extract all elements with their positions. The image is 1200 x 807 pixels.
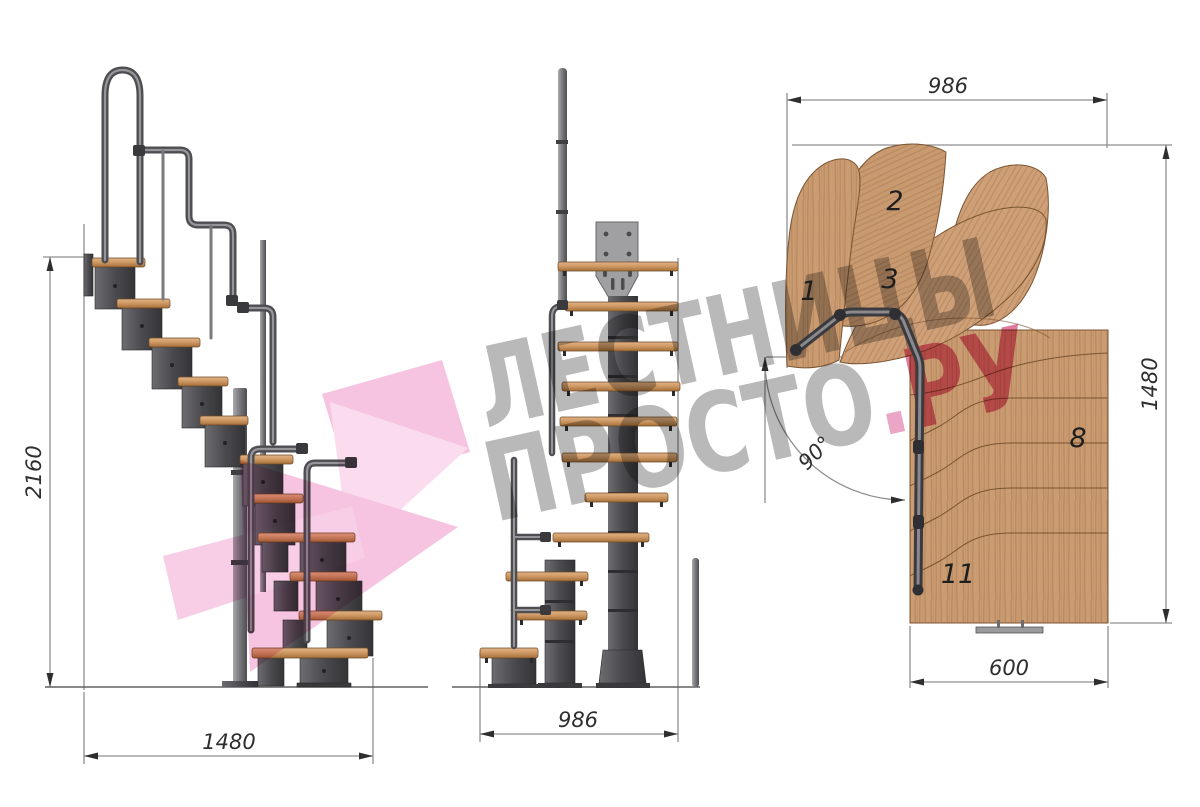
dim-label-1480-plan: 1480: [1138, 357, 1162, 410]
tread-number-1: 1: [800, 276, 817, 307]
wall-plate: [976, 627, 1043, 633]
column-joint: [545, 640, 575, 643]
dim-label-1480-side: 1480: [202, 730, 255, 754]
tread-number-2: 2: [886, 186, 903, 217]
pole-joint: [556, 210, 568, 214]
tread-number-8: 8: [1069, 423, 1086, 454]
tread-number-3: 3: [881, 264, 898, 295]
module-base-plate: [488, 684, 540, 688]
rail-post: [692, 558, 699, 687]
plate-stub: [997, 620, 1000, 628]
column-base-plate: [596, 683, 650, 688]
tread-number-11: 11: [941, 559, 975, 590]
bottom-module: [492, 658, 536, 684]
dim-label-600: 600: [989, 656, 1029, 680]
dim-label-986-front: 986: [558, 708, 598, 732]
column-base: [599, 650, 646, 683]
pole-joint: [556, 140, 568, 144]
stair-drawing-canvas: ЛЕСТНИЦЫ ПРОСТО.РУ 2160 1480 986 986 148…: [0, 0, 1200, 807]
dim-label-2160: 2160: [22, 445, 46, 498]
handrail-loop: [105, 70, 140, 262]
column-base-plate: [538, 683, 582, 688]
watermark-suffix: РУ: [891, 302, 1043, 455]
column-joint: [545, 600, 575, 603]
dim-label-986-plan: 986: [928, 74, 968, 98]
plate-stub: [1021, 620, 1024, 628]
technical-drawing-page: ЛЕСТНИЦЫ ПРОСТО.РУ 2160 1480 986 986 148…: [0, 0, 1200, 807]
mounting-plate: [596, 222, 638, 298]
pole-base-plate: [222, 681, 258, 687]
